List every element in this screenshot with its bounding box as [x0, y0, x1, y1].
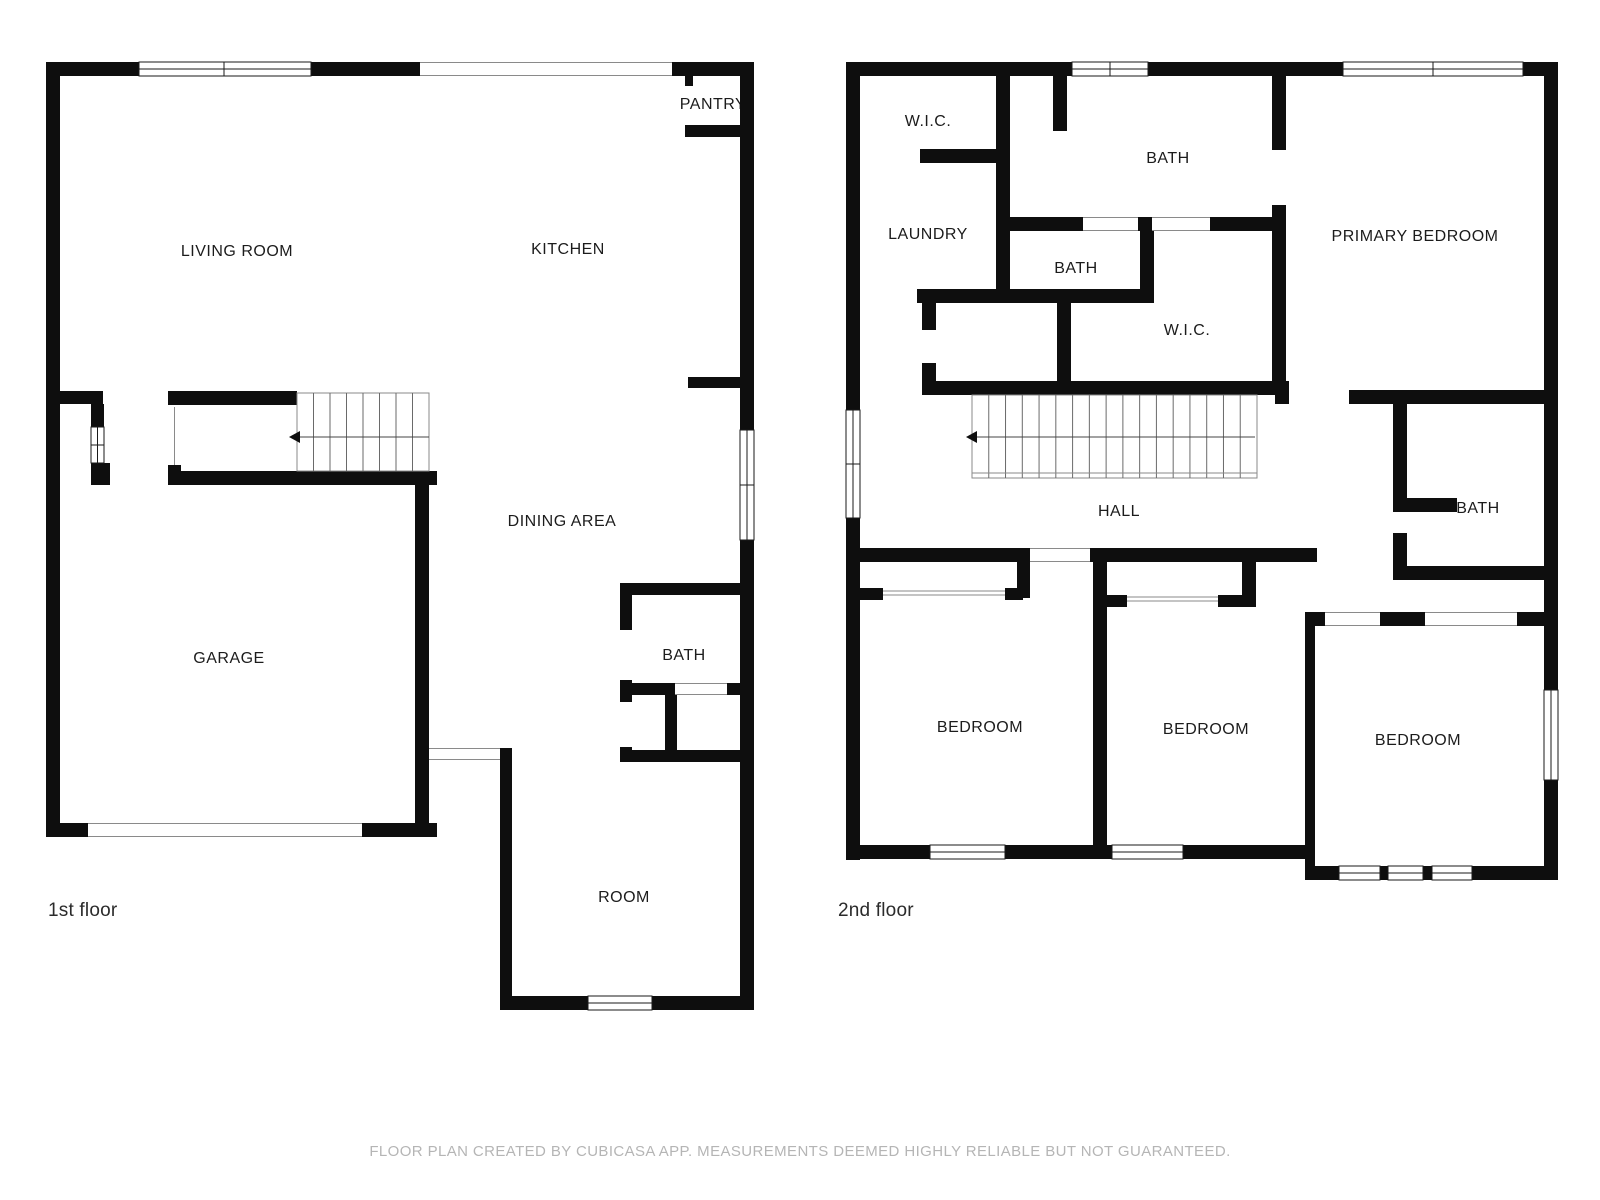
door-opening: [1152, 217, 1210, 231]
wall: [1272, 76, 1286, 150]
door-opening: [88, 823, 362, 837]
door-opening: [1325, 612, 1380, 626]
wall: [727, 683, 740, 695]
wall: [1307, 612, 1325, 626]
wall: [1102, 595, 1127, 607]
room-label: ROOM: [598, 889, 650, 906]
wall: [620, 583, 632, 630]
room-label: BATH: [1146, 150, 1189, 167]
room-label: LIVING ROOM: [181, 243, 293, 260]
wall: [46, 62, 60, 837]
wall: [620, 583, 740, 595]
wall: [1393, 566, 1544, 580]
door-opening: [1425, 612, 1517, 626]
room-label: KITCHEN: [531, 241, 605, 258]
door-opening: [1030, 548, 1090, 562]
wall: [620, 683, 675, 695]
room-label: LAUNDRY: [888, 226, 968, 243]
wall: [1242, 562, 1256, 607]
room-label: BATH: [1456, 500, 1499, 517]
wall: [620, 750, 754, 762]
wall: [500, 748, 512, 1010]
room-label: BEDROOM: [1375, 732, 1461, 749]
wall: [91, 463, 110, 485]
wall: [168, 471, 437, 485]
wall: [1305, 845, 1315, 880]
room-label: BEDROOM: [1163, 721, 1249, 738]
door-opening: [429, 748, 500, 760]
room-label: BEDROOM: [937, 719, 1023, 736]
wall: [1393, 404, 1407, 498]
floor-plan-page: LIVING ROOMKITCHENPANTRYDINING AREAGARAG…: [0, 0, 1600, 1200]
floor-plan-drawing: LIVING ROOMKITCHENPANTRYDINING AREAGARAG…: [0, 0, 1600, 1200]
wall: [1349, 390, 1544, 404]
wall: [923, 381, 1289, 395]
wall: [1380, 612, 1425, 626]
wall: [1393, 498, 1457, 512]
wall: [1005, 588, 1023, 600]
wall: [1305, 612, 1315, 845]
wall: [846, 845, 1315, 859]
wall: [1218, 595, 1245, 607]
room-label: BATH: [1054, 260, 1097, 277]
wall: [60, 391, 103, 404]
wall: [922, 303, 936, 330]
wall: [1057, 303, 1071, 395]
wall: [860, 588, 883, 600]
wall: [688, 377, 740, 388]
room-label: DINING AREA: [508, 513, 617, 530]
wall: [1517, 612, 1544, 626]
wall: [1090, 548, 1317, 562]
wall: [1272, 205, 1286, 395]
wall: [846, 548, 1030, 562]
room-label: HALL: [1098, 503, 1140, 520]
wall: [91, 404, 104, 427]
wall: [685, 76, 693, 86]
room-label: BATH: [662, 647, 705, 664]
stair-direction-arrow-icon: [289, 431, 300, 443]
room-label: W.I.C.: [905, 113, 952, 130]
wall: [1053, 76, 1067, 131]
door-opening: [420, 62, 672, 76]
room-label: PANTRY: [680, 96, 746, 113]
footer-disclaimer: FLOOR PLAN CREATED BY CUBICASA APP. MEAS…: [0, 1143, 1600, 1160]
floor-caption: 1st floor: [48, 900, 118, 921]
door-opening: [675, 683, 727, 695]
wall: [685, 125, 743, 137]
wall: [996, 76, 1010, 303]
room-label: GARAGE: [193, 650, 264, 667]
wall: [415, 471, 429, 837]
room-label: W.I.C.: [1164, 322, 1211, 339]
wall: [920, 149, 1010, 163]
wall: [168, 391, 297, 405]
wall: [1138, 217, 1152, 231]
room-label: PRIMARY BEDROOM: [1332, 228, 1499, 245]
wall: [917, 289, 1154, 303]
floor-caption: 2nd floor: [838, 900, 914, 921]
door-opening: [1083, 217, 1138, 231]
wall: [1010, 217, 1083, 231]
wall: [1140, 231, 1154, 303]
